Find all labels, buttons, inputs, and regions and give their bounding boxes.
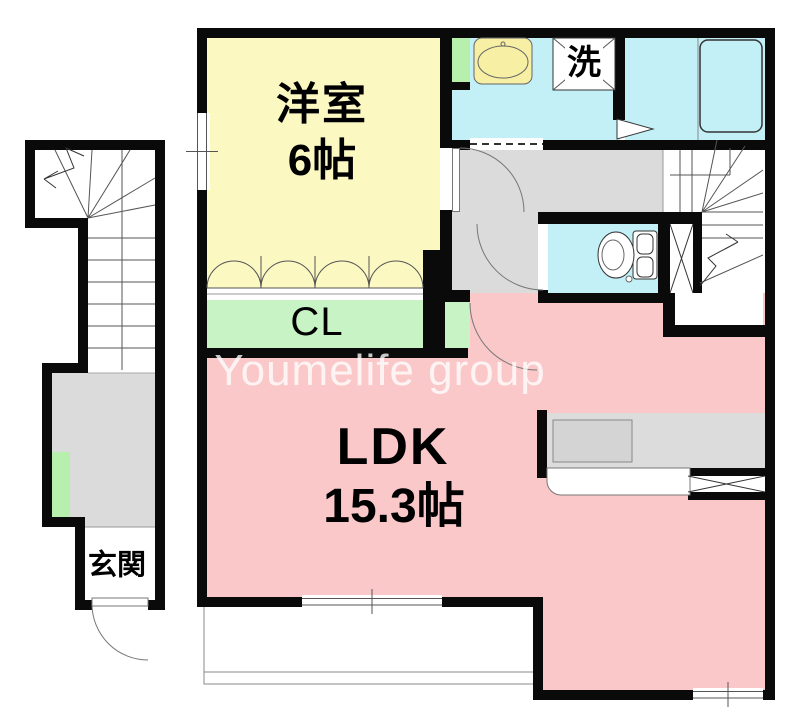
label-entrance: 玄関	[88, 552, 146, 581]
floor-plan: 洋室 6帖 CL LDK 15.3帖 洗 玄関 Youmelife group	[0, 0, 800, 727]
room-closet-2	[445, 300, 470, 348]
room-bathroom	[625, 38, 765, 140]
label-closet: CL	[290, 302, 343, 342]
door-leaf-western	[453, 149, 460, 212]
label-ldk-size: 15.3帖	[323, 483, 464, 531]
hallway-lower	[452, 150, 538, 293]
door-leaf-entrance	[92, 598, 148, 606]
kitchen-counter-front	[547, 468, 690, 495]
label-western-room: 洋室	[276, 83, 368, 127]
label-ldk: LDK	[337, 421, 450, 473]
washroom-shelf	[452, 38, 470, 82]
label-western-room-size: 6帖	[288, 139, 356, 183]
label-laundry: 洗	[565, 45, 603, 81]
kitchen-sink	[553, 420, 632, 462]
washbasin	[474, 38, 532, 84]
shoe-cabinet	[52, 452, 70, 518]
watermark: Youmelife group	[214, 346, 545, 396]
